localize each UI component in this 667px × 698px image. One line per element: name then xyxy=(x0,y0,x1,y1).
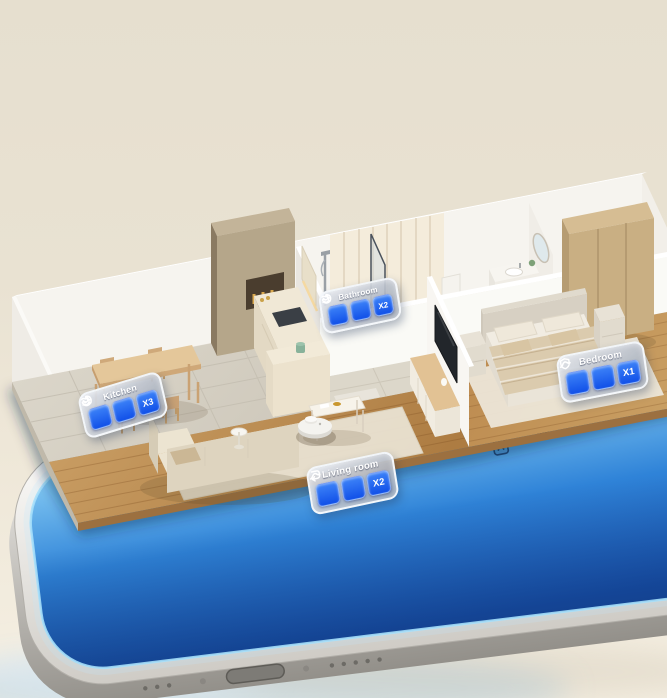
marketing-render: Kitchen X3 Bathroom X2 Bedroom X1 Living… xyxy=(0,0,667,698)
suction-swirl-icon xyxy=(87,403,113,431)
repeat-count-tile: X2 xyxy=(366,469,392,497)
bowl xyxy=(333,402,341,406)
repeat-count-tile: X1 xyxy=(616,359,642,386)
vase xyxy=(441,378,447,386)
route-curve-icon xyxy=(340,475,366,503)
plant xyxy=(529,260,535,266)
loop-arrow-icon xyxy=(315,480,341,508)
repeat-count-tile: X3 xyxy=(135,389,161,417)
lidar-turret xyxy=(305,416,317,422)
route-curve-icon xyxy=(590,364,616,391)
mop-waves-icon xyxy=(349,298,372,322)
sink-basin xyxy=(506,268,523,276)
mop-waves-icon xyxy=(111,396,137,424)
shield-icon xyxy=(565,369,591,396)
repeat-count-tile: X2 xyxy=(372,293,395,317)
suction-swirl-icon xyxy=(327,303,350,327)
scene-canvas xyxy=(0,0,667,698)
